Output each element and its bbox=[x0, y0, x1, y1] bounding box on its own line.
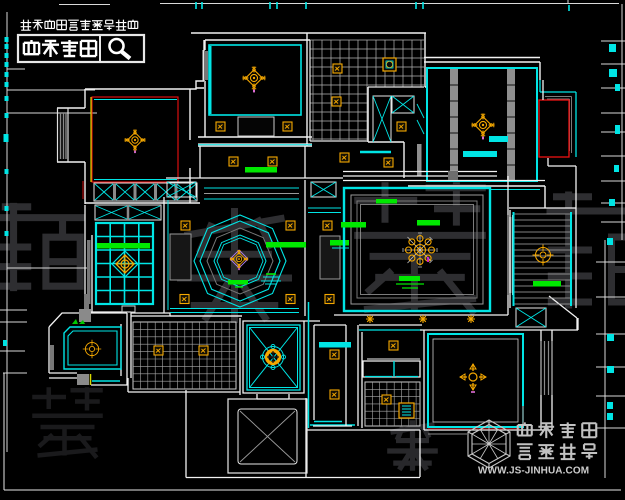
svg-text:WWW.JS-JINHUA.COM: WWW.JS-JINHUA.COM bbox=[478, 466, 589, 477]
